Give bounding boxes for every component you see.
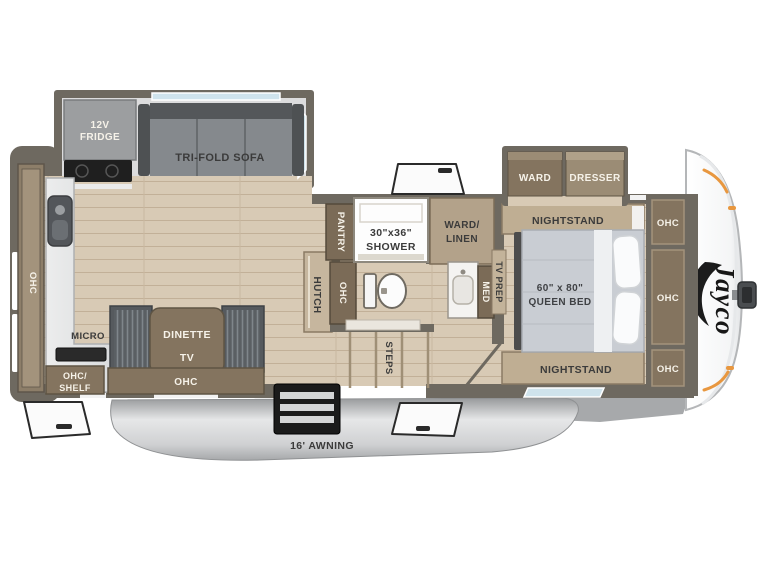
queen-bed: 60" x 80" QUEEN BED <box>514 230 644 352</box>
shower-label: SHOWER <box>366 241 416 253</box>
ohc-shelf-cabinet: OHC/ SHELF <box>46 366 104 394</box>
hutch-label: HUTCH <box>311 277 322 314</box>
ohc-shelf-label: OHC/ <box>63 371 87 381</box>
floorplan-svg: 16' AWNING Jayco <box>0 0 768 575</box>
toilet <box>364 274 406 308</box>
nightstand-bottom: NIGHTSTAND <box>502 352 644 384</box>
dresser-label: DRESSER <box>569 173 621 184</box>
nightstand-top-label: NIGHTSTAND <box>532 215 604 227</box>
baggage-door-bottom-right <box>392 403 462 436</box>
steps-label: STEPS <box>383 341 394 374</box>
baggage-door-bottom-left <box>24 402 90 438</box>
entry-steps <box>274 384 340 434</box>
tv-prep: TV PREP <box>492 250 506 314</box>
fridge-label: FRIDGE <box>80 132 120 143</box>
pillow <box>612 291 642 345</box>
hutch: HUTCH <box>304 252 332 332</box>
rear-ohc-cabinet: OHC <box>18 164 44 392</box>
nightstand-bottom-label: NIGHTSTAND <box>540 364 612 376</box>
pantry-label: PANTRY <box>335 212 346 253</box>
rear-window <box>12 314 18 372</box>
dinette-tv-label: TV <box>180 352 194 364</box>
tv-prep-label: TV PREP <box>494 261 504 302</box>
fridge: 12V FRIDGE <box>64 100 136 160</box>
sofa-label: TRI-FOLD SOFA <box>175 152 265 164</box>
ohc-shelf-label: SHELF <box>59 383 91 393</box>
microwave <box>56 348 106 361</box>
dinette-table <box>150 308 224 374</box>
bedroom-ohc-column: OHC OHC OHC <box>646 194 690 386</box>
ward-linen-cabinet: WARD/ LINEN <box>430 198 494 264</box>
front-marker-light-top <box>728 206 736 210</box>
baggage-door-top <box>392 164 464 194</box>
kitchen-sink <box>48 196 72 246</box>
rear-ohc-label: OHC <box>27 272 38 294</box>
bedroom-window <box>524 388 604 397</box>
floorplan-canvas: 16' AWNING Jayco <box>0 0 768 575</box>
ohc-bottom-cabinet: OHC <box>108 368 264 394</box>
awning-label: 16' AWNING <box>290 440 354 452</box>
bedroom-ohc-label: OHC <box>657 364 679 375</box>
dinette: DINETTE TV <box>110 306 264 374</box>
sofa-window-top <box>152 93 280 100</box>
bedroom-ohc-label: OHC <box>657 293 679 304</box>
pantry-ohc-label: OHC <box>337 282 348 304</box>
bed-label: 60" x 80" <box>537 283 583 294</box>
pillow <box>612 235 642 289</box>
micro-label: MICRO <box>71 331 105 342</box>
pantry: PANTRY <box>326 204 356 260</box>
tri-fold-sofa: TRI-FOLD SOFA <box>138 103 304 176</box>
rear-window <box>12 252 18 310</box>
front-marker-light-bottom <box>726 366 734 370</box>
dinette-label: DINETTE <box>163 329 211 341</box>
ward-linen-label: LINEN <box>446 234 478 245</box>
pantry-ohc: OHC <box>330 262 356 324</box>
shower-label: 30"x36" <box>370 227 412 239</box>
fridge-label: 12V <box>91 120 110 131</box>
bedroom: TV PREP NIGHTSTAND NIGHTSTAND 60" x 80" … <box>492 146 690 386</box>
ohc-bottom-label: OHC <box>174 377 197 388</box>
bath-vanity <box>448 262 478 318</box>
bed-label: QUEEN BED <box>528 297 591 308</box>
med-label: MED <box>481 281 491 302</box>
bedroom-ohc-label: OHC <box>657 218 679 229</box>
ward-dresser-slideout: WARD DRESSER <box>502 146 628 206</box>
ward-label: WARD <box>519 173 551 184</box>
ward-linen-label: WARD/ <box>444 220 479 231</box>
shower: 30"x36" SHOWER <box>354 198 428 262</box>
